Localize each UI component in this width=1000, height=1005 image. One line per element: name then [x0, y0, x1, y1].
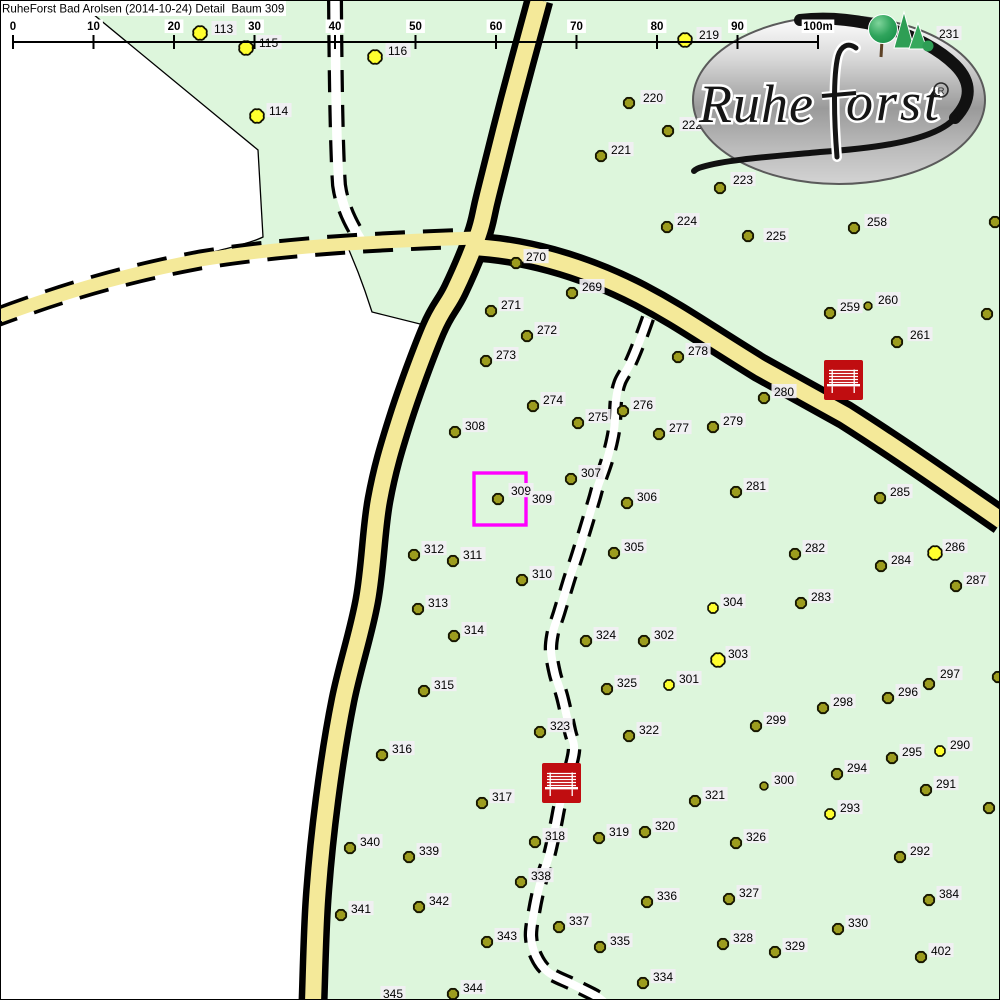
svg-text:60: 60 [490, 21, 503, 33]
svg-text:327: 327 [739, 886, 759, 900]
svg-text:295: 295 [902, 745, 922, 759]
svg-text:303: 303 [728, 647, 748, 661]
svg-text:225: 225 [766, 229, 786, 243]
svg-text:287: 287 [966, 573, 986, 587]
svg-text:339: 339 [419, 844, 439, 858]
svg-text:220: 220 [643, 91, 663, 105]
svg-text:323: 323 [550, 719, 570, 733]
svg-text:282: 282 [805, 541, 825, 555]
svg-text:50: 50 [409, 21, 422, 33]
svg-text:284: 284 [891, 553, 911, 567]
svg-text:316: 316 [392, 742, 412, 756]
svg-text:301: 301 [679, 672, 699, 686]
svg-text:337: 337 [569, 914, 589, 928]
svg-text:307: 307 [581, 466, 601, 480]
svg-text:341: 341 [351, 902, 371, 916]
svg-text:343: 343 [497, 929, 517, 943]
svg-text:259: 259 [840, 300, 860, 314]
svg-text:308: 308 [465, 419, 485, 433]
svg-text:310: 310 [532, 567, 552, 581]
svg-text:270: 270 [526, 250, 546, 264]
svg-text:274: 274 [543, 393, 563, 407]
svg-text:Ruhe: Ruhe [698, 74, 814, 134]
svg-text:320: 320 [655, 819, 675, 833]
svg-text:342: 342 [429, 894, 449, 908]
svg-text:345: 345 [383, 987, 403, 1000]
svg-text:300: 300 [774, 773, 794, 787]
svg-text:286: 286 [945, 540, 965, 554]
svg-text:299: 299 [766, 713, 786, 727]
svg-text:40: 40 [329, 21, 342, 33]
svg-text:273: 273 [496, 348, 516, 362]
svg-text:285: 285 [890, 485, 910, 499]
svg-text:281: 281 [746, 479, 766, 493]
svg-text:219: 219 [699, 28, 719, 42]
svg-text:279: 279 [723, 414, 743, 428]
svg-text:313: 313 [428, 596, 448, 610]
svg-text:100m: 100m [803, 21, 832, 33]
svg-text:336: 336 [657, 889, 677, 903]
svg-text:30: 30 [248, 21, 261, 33]
svg-text:319: 319 [609, 825, 629, 839]
svg-text:278: 278 [688, 344, 708, 358]
svg-text:277: 277 [669, 421, 689, 435]
svg-text:280: 280 [774, 385, 794, 399]
svg-text:384: 384 [939, 887, 959, 901]
svg-text:326: 326 [746, 830, 766, 844]
svg-text:302: 302 [654, 628, 674, 642]
svg-text:309: 309 [532, 492, 552, 506]
svg-text:329: 329 [785, 939, 805, 953]
svg-text:261: 261 [910, 328, 930, 342]
svg-text:318: 318 [545, 829, 565, 843]
svg-text:340: 340 [360, 835, 380, 849]
svg-text:334: 334 [653, 970, 673, 984]
svg-text:311: 311 [463, 548, 482, 562]
svg-text:113: 113 [214, 22, 233, 36]
svg-text:224: 224 [677, 214, 697, 228]
svg-text:80: 80 [651, 21, 664, 33]
svg-text:315: 315 [434, 678, 454, 692]
svg-text:271: 271 [501, 298, 521, 312]
svg-text:321: 321 [705, 788, 725, 802]
svg-text:293: 293 [840, 801, 860, 815]
svg-text:10: 10 [87, 21, 100, 33]
svg-text:70: 70 [570, 21, 583, 33]
svg-text:260: 260 [878, 293, 898, 307]
svg-text:231: 231 [939, 27, 959, 41]
svg-text:335: 335 [610, 934, 630, 948]
svg-text:306: 306 [637, 490, 657, 504]
svg-text:324: 324 [596, 628, 616, 642]
svg-text:297: 297 [940, 667, 960, 681]
svg-text:338: 338 [531, 869, 551, 883]
svg-text:116: 116 [388, 44, 407, 58]
svg-text:322: 322 [639, 723, 659, 737]
svg-text:258: 258 [867, 215, 887, 229]
svg-text:275: 275 [588, 410, 608, 424]
svg-text:221: 221 [611, 143, 631, 157]
svg-text:402: 402 [931, 944, 951, 958]
svg-text:309: 309 [511, 484, 531, 498]
svg-text:orst: orst [846, 72, 942, 132]
svg-text:304: 304 [723, 595, 743, 609]
svg-text:269: 269 [582, 280, 602, 294]
svg-text:90: 90 [731, 21, 744, 33]
svg-text:305: 305 [624, 540, 644, 554]
svg-text:325: 325 [617, 676, 637, 690]
svg-text:317: 317 [492, 790, 512, 804]
svg-text:312: 312 [424, 542, 444, 556]
svg-text:291: 291 [936, 777, 956, 791]
svg-text:344: 344 [463, 981, 483, 995]
svg-text:292: 292 [910, 844, 930, 858]
svg-text:314: 314 [464, 623, 484, 637]
svg-text:0: 0 [10, 21, 16, 33]
svg-text:272: 272 [537, 323, 557, 337]
svg-text:290: 290 [950, 738, 970, 752]
svg-text:223: 223 [733, 173, 753, 187]
svg-text:276: 276 [633, 398, 653, 412]
svg-text:20: 20 [168, 21, 181, 33]
svg-text:RuheForst Bad Arolsen (2014-10: RuheForst Bad Arolsen (2014-10-24) Detai… [2, 3, 284, 16]
svg-text:330: 330 [848, 916, 868, 930]
svg-text:294: 294 [847, 761, 867, 775]
svg-text:328: 328 [733, 931, 753, 945]
svg-text:R: R [938, 86, 945, 97]
svg-text:283: 283 [811, 590, 831, 604]
svg-text:296: 296 [898, 685, 918, 699]
svg-text:114: 114 [269, 104, 288, 118]
svg-text:298: 298 [833, 695, 853, 709]
